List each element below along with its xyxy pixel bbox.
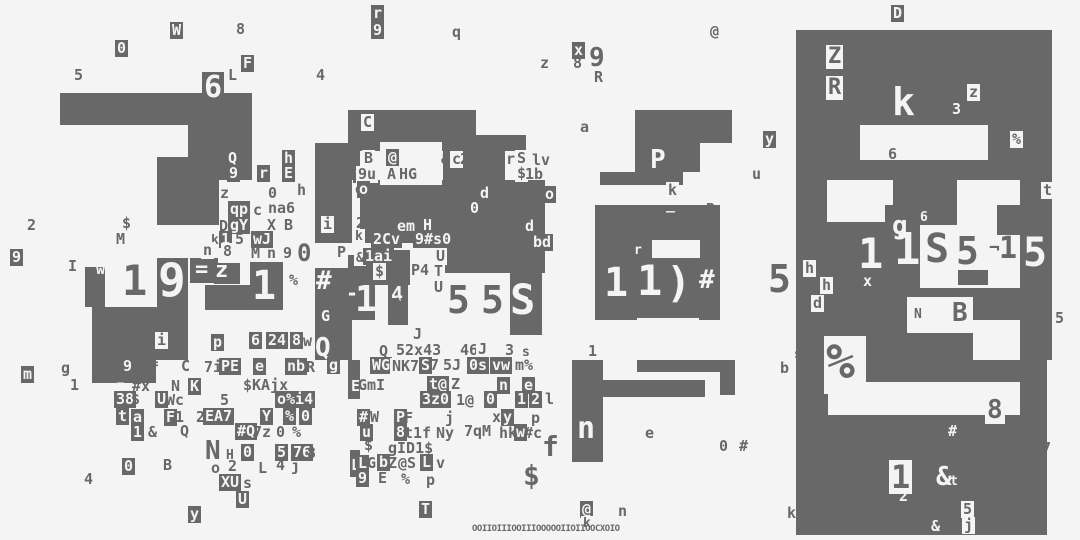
glyph: E (282, 165, 295, 182)
glyph: z (220, 186, 229, 201)
glyph: $ (122, 216, 131, 231)
glyph: n (618, 504, 627, 519)
glyph: 1@ (456, 393, 474, 408)
block (637, 360, 720, 372)
glyph: 6 (249, 332, 262, 349)
glyph: r (492, 170, 501, 185)
cutout (860, 125, 988, 160)
glyph: 0 (484, 391, 497, 408)
glyph: NK7 (390, 358, 421, 375)
glyph: HG (399, 167, 417, 182)
glyph: Z (826, 45, 843, 69)
glyph: 24 (266, 332, 288, 349)
glyph: j (962, 517, 975, 534)
glyph: & (131, 334, 140, 349)
glyph: p (211, 334, 224, 351)
glyph: 2Cv (371, 231, 402, 248)
glyph: n (497, 377, 510, 394)
glyph: t (1041, 182, 1054, 199)
glyph: i (155, 332, 168, 349)
glyph: u (527, 290, 535, 303)
glyph: u (752, 167, 761, 182)
glyph: i (321, 216, 334, 233)
glyph: 7z (253, 425, 271, 440)
glyph: % (826, 338, 855, 386)
glyph: z (967, 84, 980, 101)
glyph: y (669, 274, 678, 289)
glyph: 5 (1055, 311, 1064, 326)
glyph: g (327, 357, 340, 374)
block (720, 360, 735, 395)
glyph: I (68, 259, 77, 274)
glyph: R (594, 70, 603, 85)
glyph: I (479, 201, 488, 216)
glyph: & (405, 201, 414, 216)
glyph: d (811, 295, 824, 312)
glyph: Ny (436, 426, 454, 441)
glyph: 9#s0 (413, 231, 453, 248)
glyph: 6 (202, 72, 224, 104)
glyph: 1 (999, 234, 1017, 264)
glyph: C (361, 114, 374, 131)
glyph: # (739, 439, 748, 454)
glyph: c (253, 203, 262, 218)
glyph: q (452, 25, 461, 40)
glyph: # (948, 424, 957, 439)
glyph: g (61, 361, 70, 376)
glyph: b (780, 361, 789, 376)
glyph: @ (710, 24, 719, 39)
glyph: B (163, 458, 172, 473)
glyph: 5J (443, 358, 461, 373)
glyph: z (540, 56, 549, 71)
glyph: % (1010, 131, 1023, 148)
glyph: 8 (307, 446, 316, 461)
block (635, 110, 732, 143)
glyph: 1 (70, 378, 79, 393)
glyph: 5 (235, 232, 244, 247)
glyph: & (931, 519, 940, 534)
glyph: $ (521, 461, 542, 491)
glyph: nb (285, 358, 307, 375)
glyph: 3 (952, 102, 961, 117)
glyph: & (532, 186, 541, 201)
glyph: 5 (766, 259, 793, 299)
glyph: 8 (236, 22, 245, 37)
glyph: 0 (122, 458, 135, 475)
glyph: y (396, 294, 405, 309)
glyph: h (820, 277, 833, 294)
glyph: U (434, 280, 443, 295)
glyph: W (170, 22, 183, 39)
glyph: B (706, 202, 715, 217)
glyph: Y (494, 201, 503, 216)
glyph: o%i4 (275, 391, 315, 408)
glyph: v (436, 456, 445, 471)
glyph: GmI (358, 378, 385, 393)
block (315, 180, 352, 243)
cutout (637, 318, 699, 331)
glyph: 0 (297, 241, 311, 265)
glyph: 1 (355, 282, 377, 318)
glyph: a (580, 120, 589, 135)
block (445, 243, 545, 273)
glyph: e (253, 358, 266, 375)
glyph: 6 (920, 211, 928, 224)
glyph: 4 (84, 472, 93, 487)
glyph: f (542, 433, 559, 461)
glyph: Z (508, 234, 517, 249)
glyph: j (291, 459, 300, 474)
glyph: K (188, 378, 201, 395)
glyph: t (950, 475, 958, 488)
glyph: 1 (131, 424, 144, 441)
glyph: 1 (637, 260, 662, 302)
glyph: A (387, 167, 396, 182)
glyph: x (492, 410, 501, 425)
glyph: $ (131, 392, 140, 407)
glyph: t (116, 408, 129, 425)
block (360, 110, 476, 135)
glyph: k (892, 83, 915, 121)
glyph: 7qM (464, 424, 491, 439)
glyph: @S (398, 456, 416, 471)
glyph: 9 (158, 257, 186, 303)
glyph: 5 (74, 68, 83, 83)
glyph: 0 (241, 444, 254, 461)
glyph: 2 (228, 459, 237, 474)
glyph: 2 (529, 391, 542, 408)
glyph: C (181, 359, 190, 374)
noise-canvas: W80F5L46Q8hHk9rE9r9q@x89zRaCB9u@AHG&c2ut… (0, 0, 1080, 540)
block (157, 157, 188, 180)
glyph: $ (373, 263, 386, 280)
glyph: D (891, 5, 904, 22)
glyph: 1b (525, 167, 543, 182)
glyph: H (195, 163, 204, 178)
glyph: 5 (220, 393, 229, 408)
glyph: EA7 (203, 408, 234, 425)
glyph: P (650, 147, 666, 173)
glyph: m% (515, 358, 533, 373)
glyph: h (803, 260, 816, 277)
glyph: 1 (604, 263, 628, 303)
glyph: R (826, 76, 843, 100)
glyph: 2 (460, 152, 469, 167)
glyph: P4 (411, 263, 429, 278)
glyph: 5 (1023, 233, 1047, 273)
glyph: M (251, 246, 260, 261)
glyph: s (794, 348, 802, 361)
glyph: 4 (276, 458, 285, 473)
glyph: 9 (356, 470, 369, 487)
glyph: # (699, 267, 715, 293)
glyph: F (241, 55, 254, 72)
glyph: f (150, 361, 159, 376)
glyph: l (545, 392, 554, 407)
glyph: 0 (276, 425, 285, 440)
glyph: 5 (956, 232, 979, 270)
glyph: 2 (899, 489, 908, 504)
glyph: L (420, 454, 433, 471)
glyph: bd (531, 234, 553, 251)
glyph: w (303, 334, 312, 349)
glyph: & (441, 152, 450, 167)
glyph: 9 (371, 22, 384, 39)
glyph: P (337, 245, 346, 260)
block (796, 397, 1047, 535)
glyph: k (211, 163, 220, 178)
glyph: o (543, 186, 556, 203)
glyph: n (577, 414, 595, 444)
glyph: 3z0 (420, 391, 451, 408)
glyph: & (148, 425, 157, 440)
glyph: r (257, 165, 270, 182)
glyph: $ (364, 438, 373, 453)
glyph: B (950, 299, 970, 327)
glyph: 9 (227, 165, 240, 182)
glyph: ut (476, 152, 494, 167)
glyph: p (426, 473, 435, 488)
glyph: 9 (10, 249, 23, 266)
glyph: = (195, 259, 208, 281)
glyph: T (419, 501, 432, 518)
glyph: Q (180, 424, 189, 439)
block (157, 180, 219, 225)
glyph: y (763, 131, 776, 148)
glyph: 5 (481, 281, 504, 319)
glyph: 2 (27, 218, 36, 233)
glyph: T (454, 186, 463, 201)
glyph: Cs95 (484, 217, 520, 232)
glyph: R (306, 360, 315, 375)
glyph: 1 (588, 344, 597, 359)
glyph: 9 (123, 359, 132, 374)
glyph: o (357, 181, 370, 198)
glyph: L (258, 461, 267, 476)
glyph: r (371, 5, 384, 22)
glyph: 5 (447, 281, 470, 319)
glyph: B (460, 218, 469, 233)
block (635, 143, 700, 172)
glyph: 4 (316, 68, 325, 83)
glyph: W (370, 410, 379, 425)
glyph: h (297, 183, 306, 198)
glyph: % (401, 472, 410, 487)
glyph: 0 (115, 40, 128, 57)
glyph: G (367, 456, 376, 471)
glyph: 8 (985, 396, 1005, 424)
glyph: _ (666, 197, 675, 212)
glyph: B (284, 218, 293, 233)
glyph: J (413, 327, 422, 342)
glyph: @ (386, 149, 399, 166)
glyph: XU (219, 474, 241, 491)
glyph: e (645, 426, 654, 441)
glyph: m (21, 366, 34, 383)
glyph: z (215, 260, 228, 282)
glyph: 8 (290, 332, 303, 349)
block (892, 160, 955, 180)
glyph: Wc (166, 393, 184, 408)
glyph: Z (388, 456, 397, 471)
block (603, 380, 705, 397)
glyph: w (361, 265, 369, 278)
glyph: k (353, 229, 365, 244)
glyph: E (378, 471, 387, 486)
glyph: na6 (268, 201, 295, 216)
glyph: 1 (858, 233, 883, 275)
glyph: 6 (888, 147, 897, 162)
glyph: 1 (732, 262, 757, 304)
glyph: 6 (430, 201, 439, 216)
glyph: 1 (515, 391, 528, 408)
glyph: 8 (239, 151, 248, 166)
glyph: 9 (283, 246, 292, 261)
glyph: PE (219, 358, 241, 375)
glyph: # (316, 268, 332, 294)
glyph: L (228, 68, 237, 83)
glyph: 7 (1042, 441, 1051, 456)
glyph: S (925, 229, 949, 269)
cutout (973, 320, 1020, 360)
glyph: WG (370, 357, 392, 374)
glyph: M (116, 232, 125, 247)
glyph: k (787, 506, 796, 521)
glyph: 8 (573, 56, 582, 71)
glyph: #c (524, 426, 542, 441)
glyph: 7 (430, 358, 439, 373)
glyph: % (289, 273, 298, 288)
glyph: T (434, 264, 443, 279)
glyph: 0 (719, 439, 728, 454)
glyph: r (506, 152, 515, 167)
glyph: y (188, 506, 201, 523)
glyph: % (292, 425, 301, 440)
glyph: U (236, 491, 249, 508)
block (205, 285, 250, 310)
glyph: < (533, 312, 541, 325)
glyph: 1 (894, 228, 921, 272)
glyph: N (914, 308, 922, 321)
glyph: 1 (122, 260, 147, 302)
glyph: vw (490, 357, 512, 374)
glyph: G (321, 309, 330, 324)
glyph: 0s (467, 357, 489, 374)
barcode: OOIIOIIIOOIIIOOOOOIIOIIOOCXOIO (472, 525, 620, 534)
glyph: n (267, 246, 276, 261)
glyph: Z (451, 377, 460, 392)
glyph: 1 (252, 266, 276, 306)
glyph: w (96, 262, 105, 277)
glyph: s (243, 476, 252, 491)
